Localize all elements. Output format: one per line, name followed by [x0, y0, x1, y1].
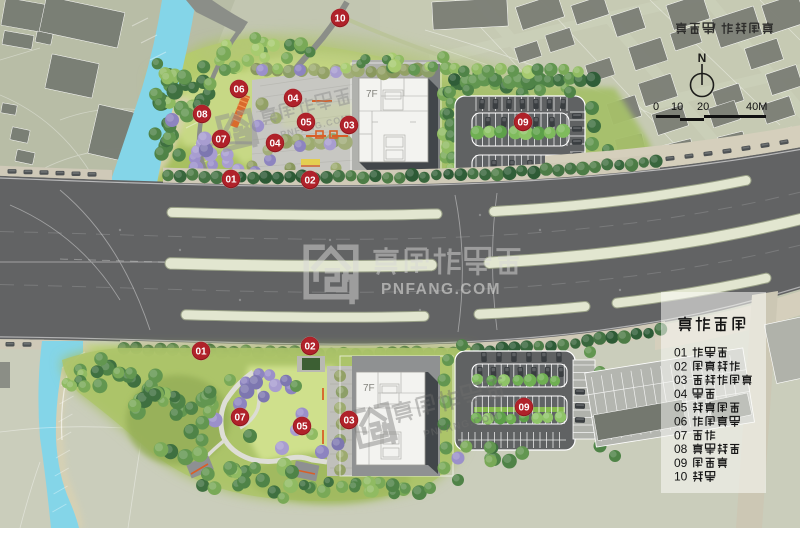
svg-text:02: 02	[304, 176, 316, 187]
svg-text:08: 08	[674, 442, 688, 456]
svg-text:05: 05	[300, 118, 312, 129]
svg-text:01: 01	[225, 175, 237, 186]
svg-text:04: 04	[674, 387, 688, 401]
svg-text:0: 0	[653, 101, 659, 113]
svg-text:02: 02	[304, 342, 316, 353]
svg-text:09: 09	[517, 118, 529, 129]
svg-text:N: N	[698, 51, 707, 65]
svg-text:/: /	[712, 21, 716, 36]
svg-text:7F: 7F	[366, 89, 378, 100]
svg-text:04: 04	[269, 139, 281, 150]
svg-text:07: 07	[674, 428, 688, 442]
svg-text:08: 08	[196, 110, 208, 121]
svg-text:01: 01	[195, 347, 207, 358]
svg-text:7F: 7F	[363, 383, 375, 394]
svg-text:02: 02	[674, 359, 688, 373]
svg-text:05: 05	[674, 401, 688, 415]
svg-text:03: 03	[674, 373, 688, 387]
svg-text:10: 10	[671, 101, 683, 113]
svg-text:06: 06	[674, 415, 688, 429]
svg-text:03: 03	[343, 121, 355, 132]
svg-text:07: 07	[234, 413, 246, 424]
svg-text:09: 09	[674, 456, 688, 470]
svg-text:40M: 40M	[746, 101, 767, 113]
svg-text:03: 03	[343, 416, 355, 427]
svg-text:10: 10	[674, 470, 688, 484]
svg-text:09: 09	[518, 403, 530, 414]
svg-text:06: 06	[233, 85, 245, 96]
svg-text:20: 20	[697, 101, 709, 113]
svg-text:01: 01	[674, 346, 688, 360]
svg-text:10: 10	[334, 14, 346, 25]
svg-text:05: 05	[296, 422, 308, 433]
svg-text:07: 07	[215, 135, 227, 146]
svg-text:PNFANG.COM: PNFANG.COM	[381, 281, 501, 298]
svg-text:04: 04	[287, 94, 299, 105]
